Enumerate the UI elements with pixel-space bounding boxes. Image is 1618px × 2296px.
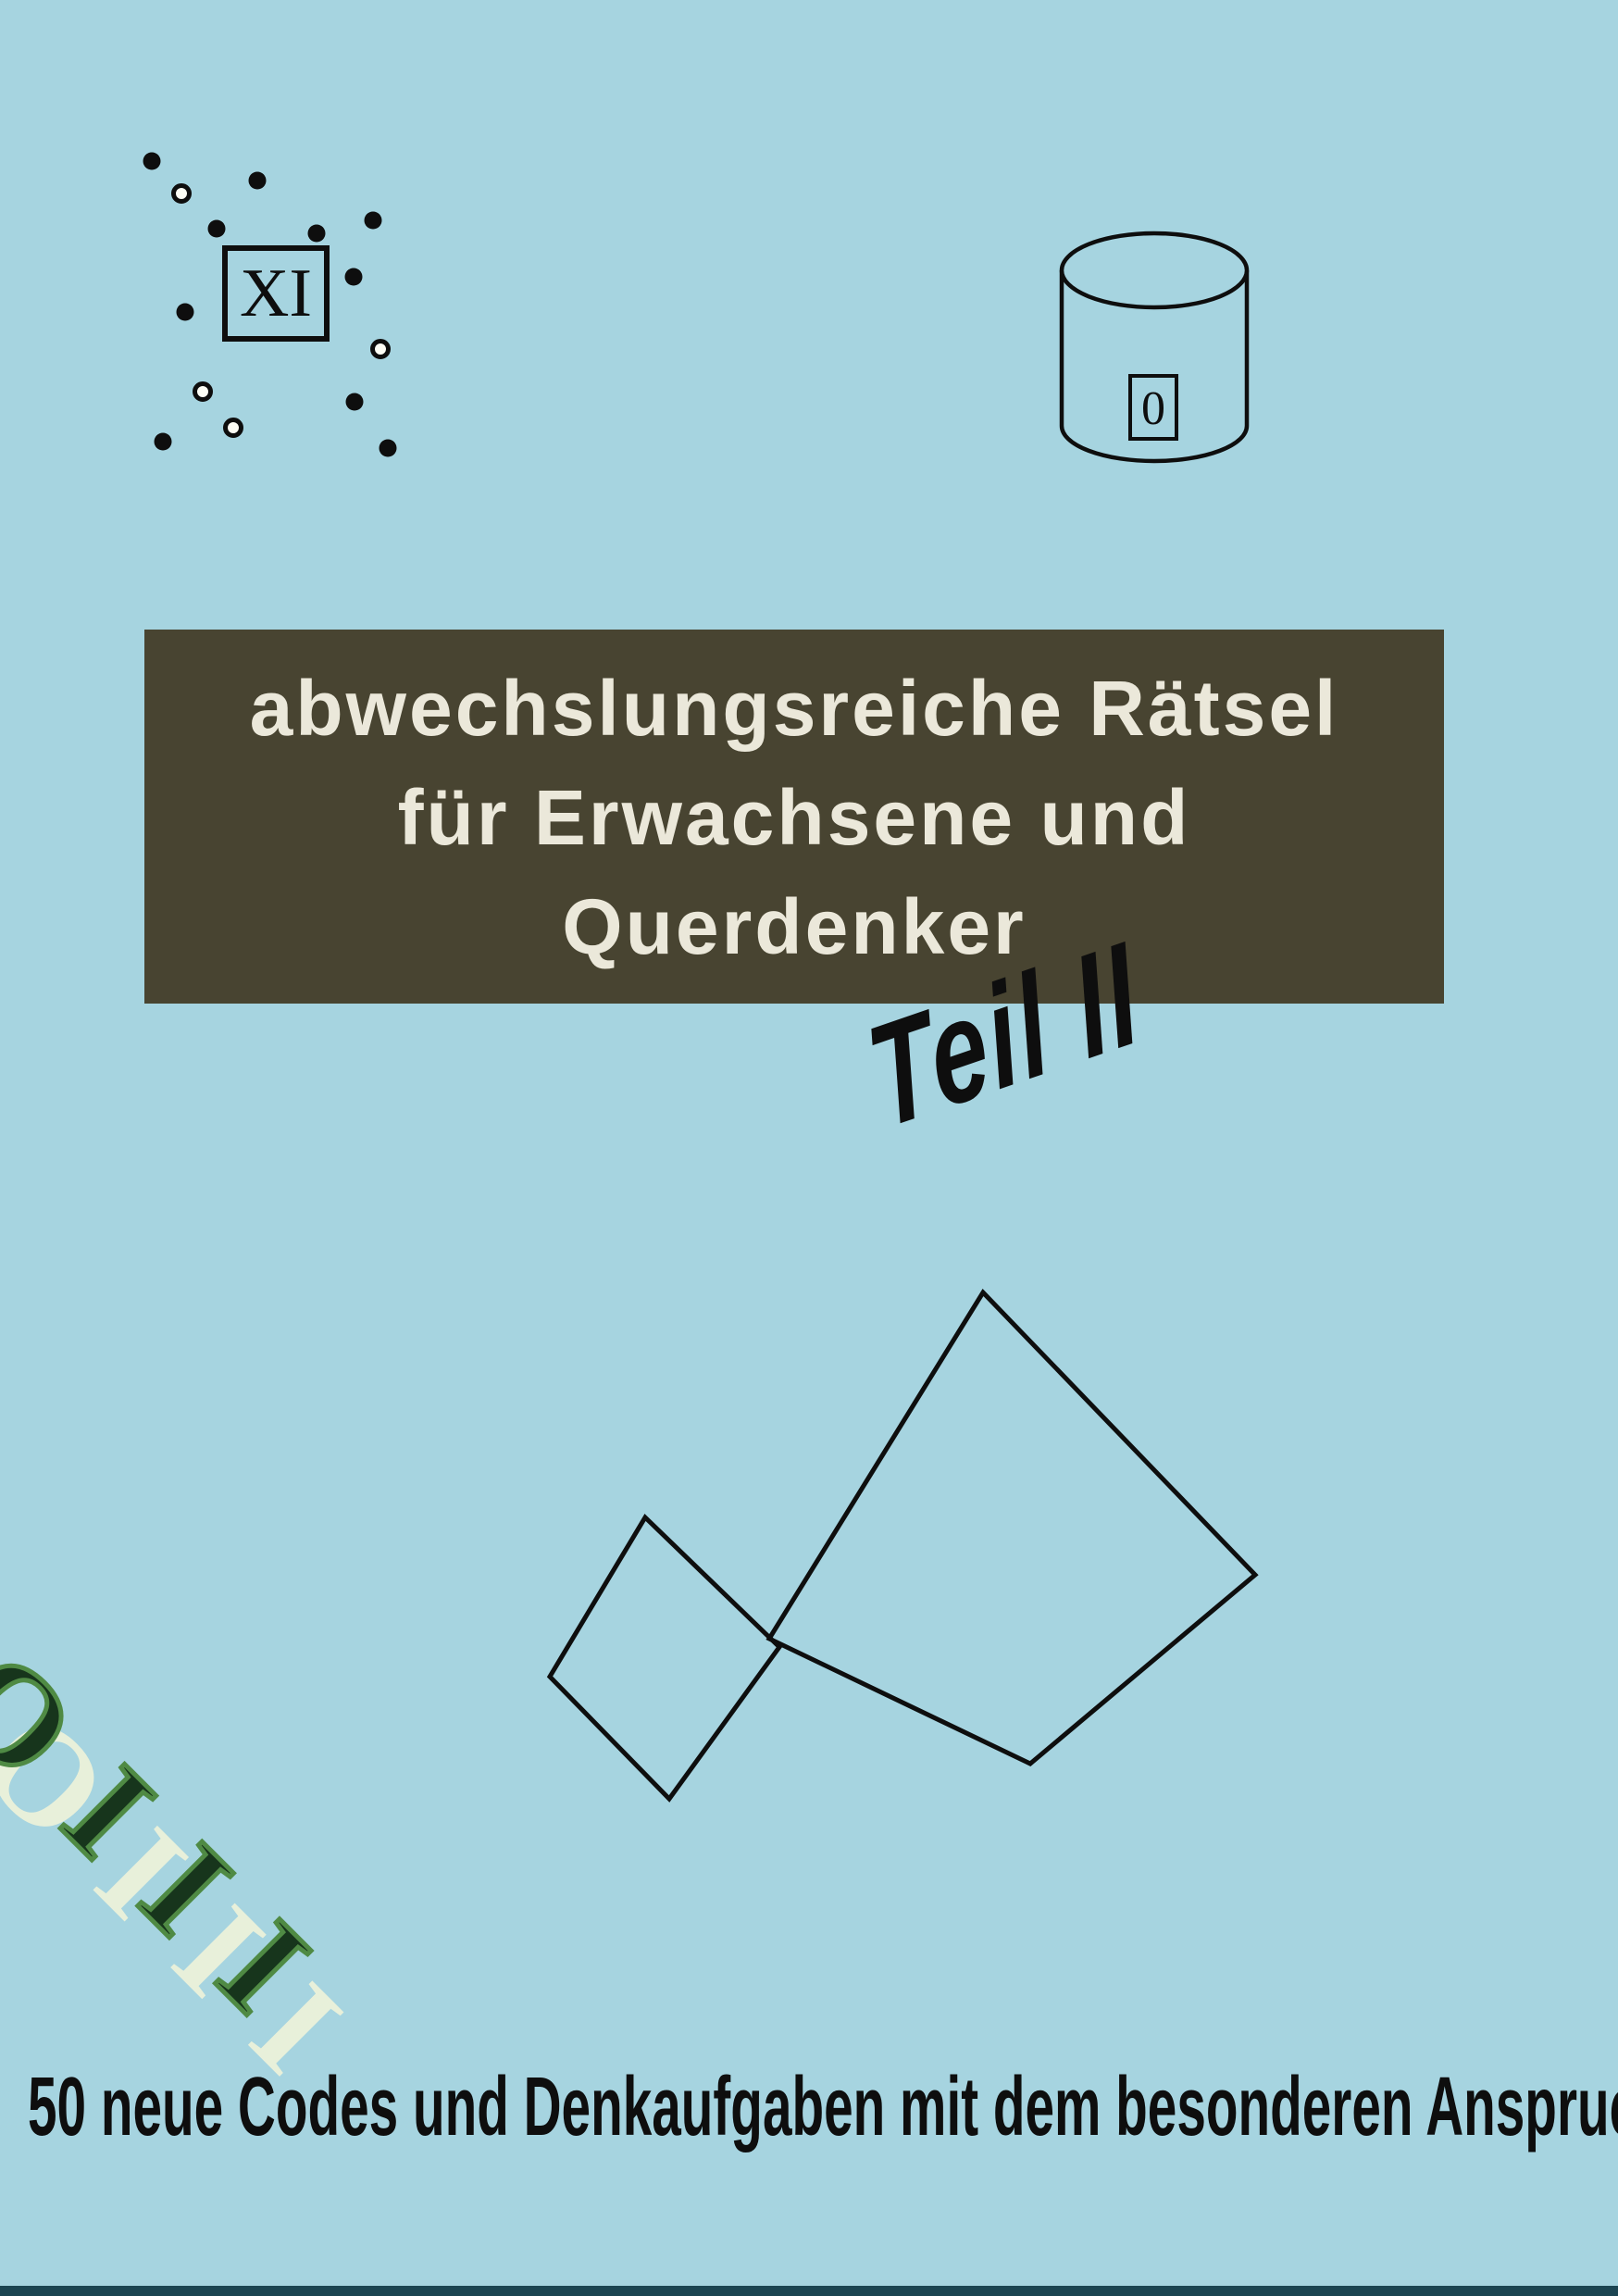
book-cover: XI 0 abwechslungsreiche Rätsel für Erwac… xyxy=(0,0,1618,2296)
bottom-edge-bar xyxy=(0,2286,1618,2296)
large-diamond xyxy=(769,1292,1255,1764)
small-diamond xyxy=(550,1517,779,1799)
tagline: 50 neue Codes und Denkaufgaben mit dem b… xyxy=(28,2057,1618,2157)
tagline-text: 50 neue Codes und Denkaufgaben mit dem b… xyxy=(28,2057,1618,2157)
